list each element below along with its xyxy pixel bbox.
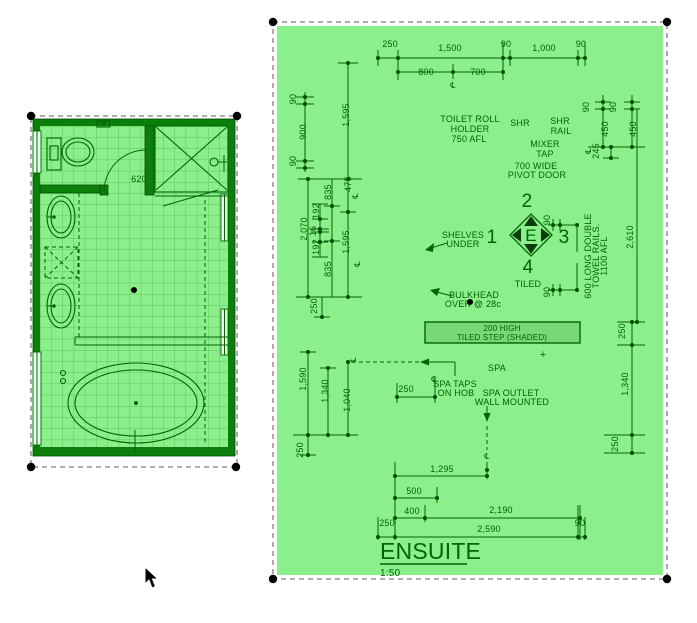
note-shr: SHR bbox=[510, 118, 530, 128]
centerline-symbol: ℄ bbox=[450, 81, 456, 90]
note-spa: SPA bbox=[488, 363, 506, 373]
drawing-scale: 1:50 bbox=[380, 568, 401, 579]
mouse-cursor-icon bbox=[145, 567, 158, 588]
dim-label: 1,500 bbox=[438, 43, 462, 53]
selection-handle[interactable] bbox=[233, 112, 241, 120]
dim-label: 1,000 bbox=[532, 43, 556, 53]
dim-label: 90 bbox=[608, 102, 618, 112]
note-shr-rail: SHR bbox=[550, 116, 570, 126]
elev-num-right: 3 bbox=[559, 227, 570, 248]
note-mixer-tap: MIXER bbox=[530, 139, 560, 149]
note-shelves: UNDER bbox=[446, 239, 479, 249]
note-shr-rail: RAIL bbox=[551, 126, 572, 136]
drawing-title: ENSUITE bbox=[380, 538, 481, 564]
centerline-symbol: ℄ bbox=[351, 193, 360, 199]
ensuite-dimension-object[interactable]: 200 HIGH TILED STEP (SHADED) E 2 1 3 4 2… bbox=[269, 18, 671, 583]
floor-plan-object[interactable]: 620 bbox=[27, 112, 241, 471]
dim-label: 250 bbox=[610, 436, 620, 452]
point-marker bbox=[131, 287, 137, 293]
note-toilet-roll: 750 AFL bbox=[452, 134, 487, 144]
grid-plus-marker: + bbox=[540, 349, 547, 361]
dim-label: 1,295 bbox=[430, 464, 454, 474]
dim-label: 700 bbox=[470, 67, 486, 77]
selection-handle[interactable] bbox=[269, 18, 277, 26]
dim-label: 192 bbox=[311, 239, 321, 255]
centerline-symbol: ℄ bbox=[353, 261, 362, 267]
centerline-symbol: ℄ bbox=[349, 357, 358, 363]
note-bulkhead: OVER @ 28c bbox=[445, 299, 501, 309]
elev-num-top: 2 bbox=[522, 191, 533, 212]
dim-label: 90 bbox=[288, 94, 298, 104]
dim-label: 1,340 bbox=[320, 379, 330, 403]
selection-handle[interactable] bbox=[269, 575, 277, 583]
note-towel-rails: 1100 AFL bbox=[599, 236, 609, 275]
door-dim-label: 620 bbox=[131, 174, 147, 184]
dim-label: 900 bbox=[298, 124, 308, 140]
elev-num-left: 1 bbox=[487, 227, 498, 248]
dim-label: 1,595 bbox=[341, 230, 351, 254]
dim-label: 90 bbox=[542, 215, 552, 225]
dim-label: 2,190 bbox=[489, 505, 513, 515]
dim-label: 250 bbox=[617, 323, 627, 339]
dim-label: 1,340 bbox=[620, 372, 630, 396]
note-pivot-door: PIVOT DOOR bbox=[508, 170, 567, 180]
dim-label: 90 bbox=[288, 156, 298, 166]
dim-label: 1,590 bbox=[298, 367, 308, 391]
selection-handle[interactable] bbox=[232, 463, 240, 471]
step-note: TILED STEP (SHADED) bbox=[457, 333, 547, 342]
dim-label: 90 bbox=[576, 39, 586, 49]
dim-label: 1,595 bbox=[341, 103, 351, 127]
dim-label: 450 bbox=[628, 121, 638, 137]
dim-label: 400 bbox=[404, 506, 420, 516]
note-toilet-roll: TOILET ROLL bbox=[440, 114, 499, 124]
step-note: 200 HIGH bbox=[483, 324, 520, 333]
dim-label: 2,590 bbox=[477, 524, 501, 534]
centerline-symbol: ℄ bbox=[584, 148, 593, 154]
selection-handle[interactable] bbox=[27, 112, 35, 120]
dim-label: 250 bbox=[379, 518, 395, 528]
elev-letter: E bbox=[525, 226, 537, 245]
dim-label: 250 bbox=[382, 39, 398, 49]
selection-handle[interactable] bbox=[27, 463, 35, 471]
dim-label: 500 bbox=[406, 486, 422, 496]
dim-label: 250 bbox=[398, 384, 414, 394]
dim-label: 475 bbox=[343, 176, 353, 192]
note-spa-taps: ON HOB bbox=[438, 388, 475, 398]
dim-label: 90 bbox=[575, 518, 585, 528]
dim-label: 90 bbox=[581, 102, 591, 112]
note-spa-outlet: WALL MOUNTED bbox=[475, 397, 550, 407]
selection-handle[interactable] bbox=[663, 575, 671, 583]
dim-label: 450 bbox=[600, 121, 610, 137]
dim-label: 1,040 bbox=[342, 388, 352, 412]
dim-label: 90 bbox=[501, 39, 511, 49]
dim-label: 90 bbox=[542, 287, 552, 297]
selection-handle[interactable] bbox=[663, 18, 671, 26]
dim-label: 16 bbox=[308, 226, 318, 236]
note-tiled: TILED bbox=[515, 279, 542, 289]
dim-label: 192 bbox=[311, 203, 321, 219]
note-mixer-tap: TAP bbox=[536, 149, 553, 159]
dim-label: 835 bbox=[323, 184, 333, 200]
dim-label: 250 bbox=[295, 442, 305, 458]
centerline-symbol: ℄ bbox=[484, 452, 490, 461]
drawing-canvas: 620 200 HIGH TILED STEP (SHADED) bbox=[0, 0, 697, 623]
point-marker bbox=[467, 299, 473, 305]
dim-label: 250 bbox=[309, 298, 319, 314]
dim-label: 2,610 bbox=[625, 225, 635, 249]
dim-label: 835 bbox=[323, 261, 333, 277]
elev-num-bottom: 4 bbox=[523, 257, 534, 278]
note-toilet-roll: HOLDER bbox=[451, 124, 490, 134]
dim-label: 800 bbox=[418, 67, 434, 77]
